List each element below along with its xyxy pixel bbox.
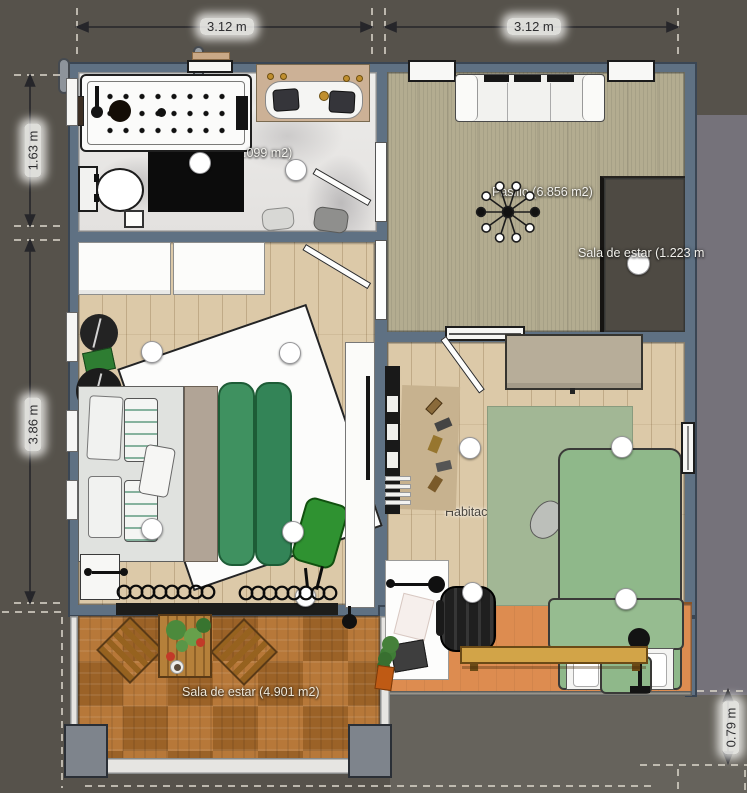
window-mullion [687, 426, 689, 470]
room-label-pasillo: Pasillo (6.856 m2) [492, 185, 593, 199]
floorplan-canvas[interactable]: .099 m2) Pasillo (6.856 m2) Sala de esta… [0, 0, 747, 793]
closet-panel-handle [366, 376, 370, 480]
ceiling-light-icon[interactable] [279, 342, 301, 364]
bathtub-drain-icon [109, 100, 131, 122]
toilet-tank [78, 166, 98, 212]
trunk-knob-icon [120, 568, 128, 576]
shelf-books [387, 452, 398, 468]
table-plant-icon [176, 640, 188, 652]
bathtub-faucet-icon [95, 86, 99, 108]
desk-lamp-head-icon[interactable] [428, 576, 445, 593]
vanity-faucet-icon [356, 75, 363, 82]
sofa[interactable] [455, 74, 605, 122]
toilet[interactable] [78, 166, 148, 214]
ceiling-light-icon[interactable] [189, 152, 211, 174]
terrace-trim-bottom [78, 758, 380, 774]
terrace-plant-pot [374, 665, 394, 691]
pillow [86, 395, 123, 461]
plate-food-icon [174, 664, 181, 671]
dimension-label-bottom-right: 0.79 m [722, 701, 739, 755]
bathroom-window-left[interactable] [66, 78, 78, 126]
bench-shadow [462, 666, 646, 669]
sofa-armrest-right [582, 75, 604, 121]
side-table[interactable] [80, 314, 118, 352]
paper-stack [385, 500, 411, 505]
toilet-hinge [94, 174, 99, 182]
side-table-highlight [92, 318, 101, 348]
sofa-cushion [514, 75, 541, 82]
terrace-post-left [64, 724, 108, 778]
vanity-soap-icon [319, 91, 329, 101]
ceiling-light-icon[interactable] [282, 521, 304, 543]
desk-lamp-joint-icon [386, 579, 395, 588]
room-label-bathroom: .099 m2) [243, 146, 292, 160]
wardrobe-bedroom-right[interactable] [173, 242, 265, 295]
sofa-seat-line [550, 83, 551, 121]
trunk-handle [92, 571, 122, 574]
bed-habitacion-blanket [548, 598, 684, 650]
terrace-plant-icon [382, 636, 399, 653]
vanity[interactable] [256, 64, 370, 122]
sofa-seat-line [507, 83, 508, 121]
paper-stack [385, 492, 411, 497]
ceiling-light-icon[interactable] [615, 588, 637, 610]
bedroom-door-pocket[interactable] [375, 240, 387, 320]
habitacion-window-right[interactable] [681, 422, 695, 474]
bedroom-window-left[interactable] [66, 410, 78, 452]
vanity-faucet-icon [267, 73, 274, 80]
shelf-books [387, 424, 398, 440]
sofa-cushion [484, 75, 509, 82]
floor-lamp-base [630, 686, 650, 693]
wardrobe-habitacion[interactable] [505, 334, 643, 390]
dimension-label-left-upper: 1.63 m [24, 124, 41, 178]
ceiling-light-icon[interactable] [459, 437, 481, 459]
vanity-faucet-icon [343, 75, 350, 82]
book [434, 417, 452, 432]
dimension-label-top-right: 3.12 m [507, 18, 561, 35]
terrace-plant-icon [378, 652, 392, 666]
bed-duvet[interactable] [218, 382, 255, 566]
dimension-label-left-lower: 3.86 m [24, 398, 41, 452]
book [436, 460, 453, 472]
vanity-sink-right [328, 90, 355, 113]
terrace-lamp-icon [342, 614, 357, 629]
pasillo-window-left[interactable] [408, 60, 456, 82]
ceiling-light-icon[interactable] [141, 518, 163, 540]
vanity-faucet-icon [280, 73, 287, 80]
terrace-post-right [348, 724, 392, 778]
pasillo-window-right[interactable] [607, 60, 655, 82]
storage-trunk[interactable] [80, 554, 120, 600]
bedroom-window-left[interactable] [66, 480, 78, 520]
book [428, 435, 443, 454]
pouf-light[interactable] [261, 206, 295, 231]
table-plant-icon [166, 620, 186, 640]
bathtub-knob-icon [157, 108, 166, 117]
sofa-armrest-left [456, 75, 478, 121]
bathroom-window-box [192, 52, 230, 60]
vanity-sink-left [272, 88, 299, 112]
pillow [88, 476, 122, 538]
toilet-hinge [94, 194, 99, 202]
pouf-dark[interactable] [312, 206, 349, 234]
bed-mattress-edge [184, 386, 218, 562]
wardrobe-bedroom-left[interactable] [78, 242, 171, 295]
ceiling-light-icon[interactable] [462, 582, 483, 603]
bathroom-window[interactable] [187, 60, 233, 73]
room-label-sala-right: Sala de estar (1.223 m [578, 246, 704, 260]
bathroom-door-pocket[interactable] [375, 142, 387, 222]
office-chair-armrest [436, 600, 444, 636]
bedroom-window-left[interactable] [66, 312, 78, 362]
ground-bottom-right [390, 695, 747, 793]
book [427, 475, 443, 492]
step-stool[interactable] [124, 210, 144, 228]
book [425, 397, 442, 415]
wardrobe-pull-icon [570, 388, 575, 394]
ground-right [697, 115, 747, 695]
bathtub[interactable] [80, 74, 252, 152]
ceiling-light-icon[interactable] [285, 159, 307, 181]
dimension-label-top-left: 3.12 m [200, 18, 254, 35]
shower-divider [236, 96, 248, 130]
ceiling-light-icon[interactable] [611, 436, 633, 458]
trunk-knob-icon [84, 568, 92, 576]
table-plant-icon [196, 618, 211, 633]
sofa-cushion [547, 75, 574, 82]
shelf-books [387, 396, 398, 412]
balcony-bench[interactable] [460, 646, 648, 664]
bathtub-faucet-head-icon [91, 106, 103, 118]
ceiling-light-icon[interactable] [295, 586, 316, 607]
closet-panel[interactable] [345, 342, 375, 608]
toilet-bowl [96, 168, 144, 212]
room-label-terrace: Sala de estar (4.901 m2) [182, 685, 320, 699]
paper-stack [385, 484, 411, 489]
paper-stack [385, 476, 411, 481]
tomato-icon [196, 638, 205, 647]
terrace-lamp-stem [348, 606, 351, 616]
ceiling-light-icon[interactable] [141, 341, 163, 363]
